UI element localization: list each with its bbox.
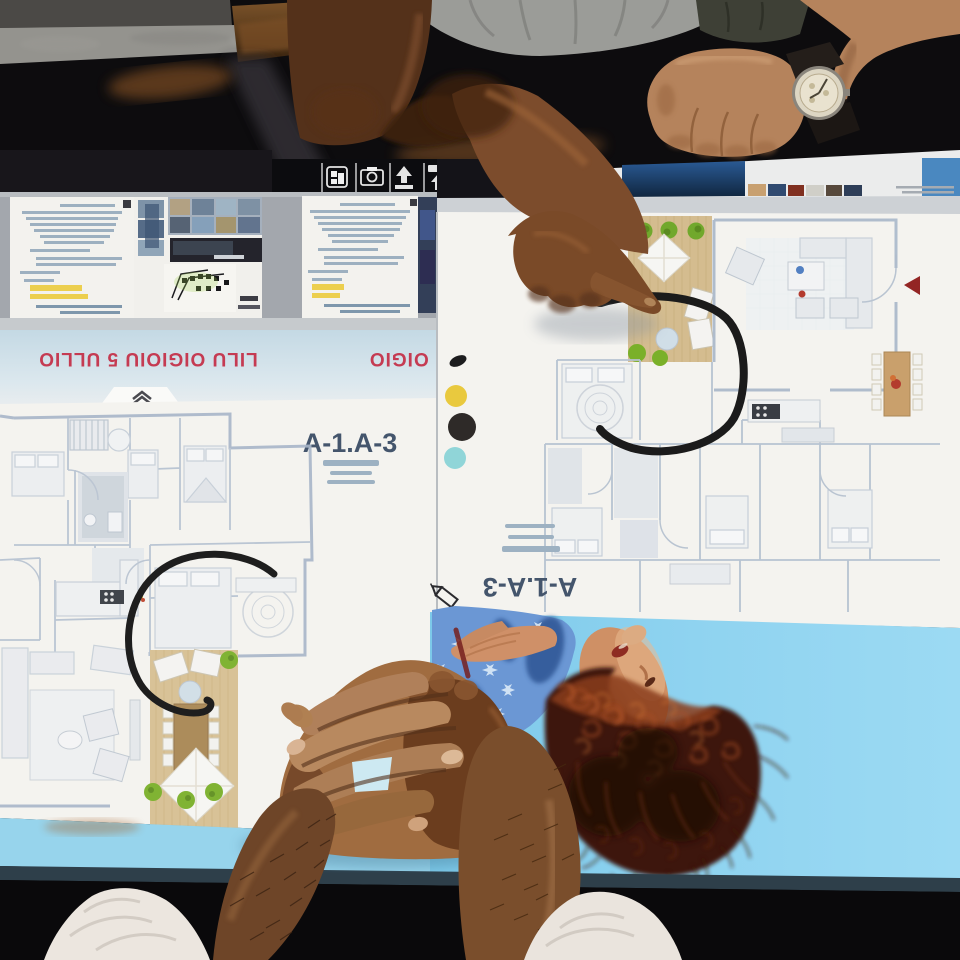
svg-text:LILU OIGIOIU 5 ULLIO: LILU OIGIOIU 5 ULLIO: [38, 348, 258, 369]
svg-text:A-1.A-3: A-1.A-3: [483, 572, 578, 602]
svg-text:A-1.A-3: A-1.A-3: [303, 428, 398, 458]
